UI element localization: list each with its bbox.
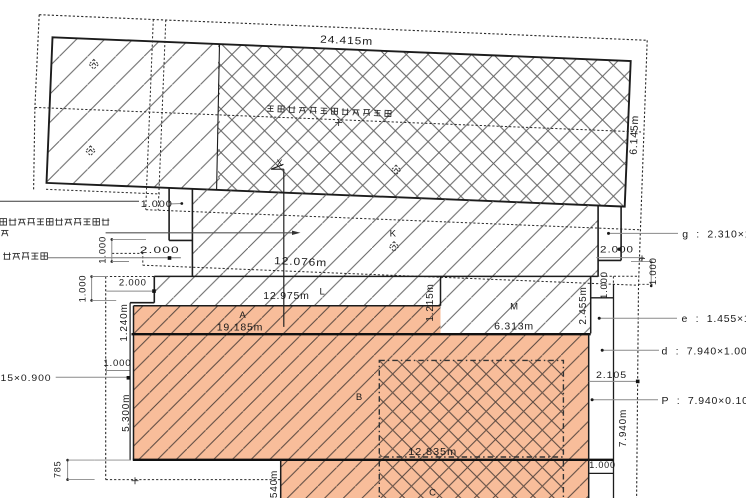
svg-text:12.975m: 12.975m [263, 290, 309, 302]
svg-text:d : 7.940×1.00: d : 7.940×1.00 [662, 345, 746, 357]
svg-text:2.455m: 2.455m [578, 286, 589, 324]
svg-text:5.300m: 5.300m [121, 394, 132, 432]
svg-text:24.415m: 24.415m [320, 34, 373, 48]
svg-text:A: A [239, 310, 246, 321]
svg-text:X: X [276, 158, 283, 168]
svg-text:1.000: 1.000 [589, 460, 616, 470]
svg-text:M: M [510, 302, 519, 313]
svg-text:1.000: 1.000 [103, 358, 131, 369]
svg-text:1.000: 1.000 [78, 275, 89, 303]
svg-text:785: 785 [53, 461, 63, 478]
svg-text:2.000: 2.000 [140, 245, 180, 256]
svg-text:15×0.900: 15×0.900 [1, 373, 52, 384]
svg-text:C: C [429, 487, 437, 498]
svg-text:9.540m: 9.540m [269, 470, 280, 498]
svg-text:2.000: 2.000 [600, 244, 634, 255]
svg-text:19.185m: 19.185m [217, 321, 263, 333]
svg-text:6.145m: 6.145m [628, 115, 642, 155]
svg-text:P : 7.940×0.10: P : 7.940×0.10 [662, 395, 746, 407]
svg-text:2.105: 2.105 [596, 370, 627, 381]
svg-text:B: B [356, 392, 363, 403]
svg-text:g : 2.310×1.: g : 2.310×1. [682, 228, 746, 240]
svg-text:1.000: 1.000 [98, 236, 109, 264]
svg-text:L: L [319, 287, 325, 298]
svg-text:2.000: 2.000 [119, 278, 147, 289]
svg-text:12.076m: 12.076m [274, 255, 327, 269]
svg-text:1.000: 1.000 [648, 257, 659, 285]
svg-text:12.835m: 12.835m [408, 446, 457, 458]
svg-text:7.940m: 7.940m [618, 409, 629, 447]
svg-text:1.215m: 1.215m [425, 283, 436, 321]
svg-text:e : 1.455×1.: e : 1.455×1. [682, 313, 746, 325]
svg-text:1.000: 1.000 [141, 199, 173, 210]
svg-text:1.240m: 1.240m [119, 303, 130, 341]
svg-text:1.000: 1.000 [599, 271, 610, 299]
svg-text:6.313m: 6.313m [494, 321, 534, 333]
svg-text:K: K [390, 229, 397, 240]
